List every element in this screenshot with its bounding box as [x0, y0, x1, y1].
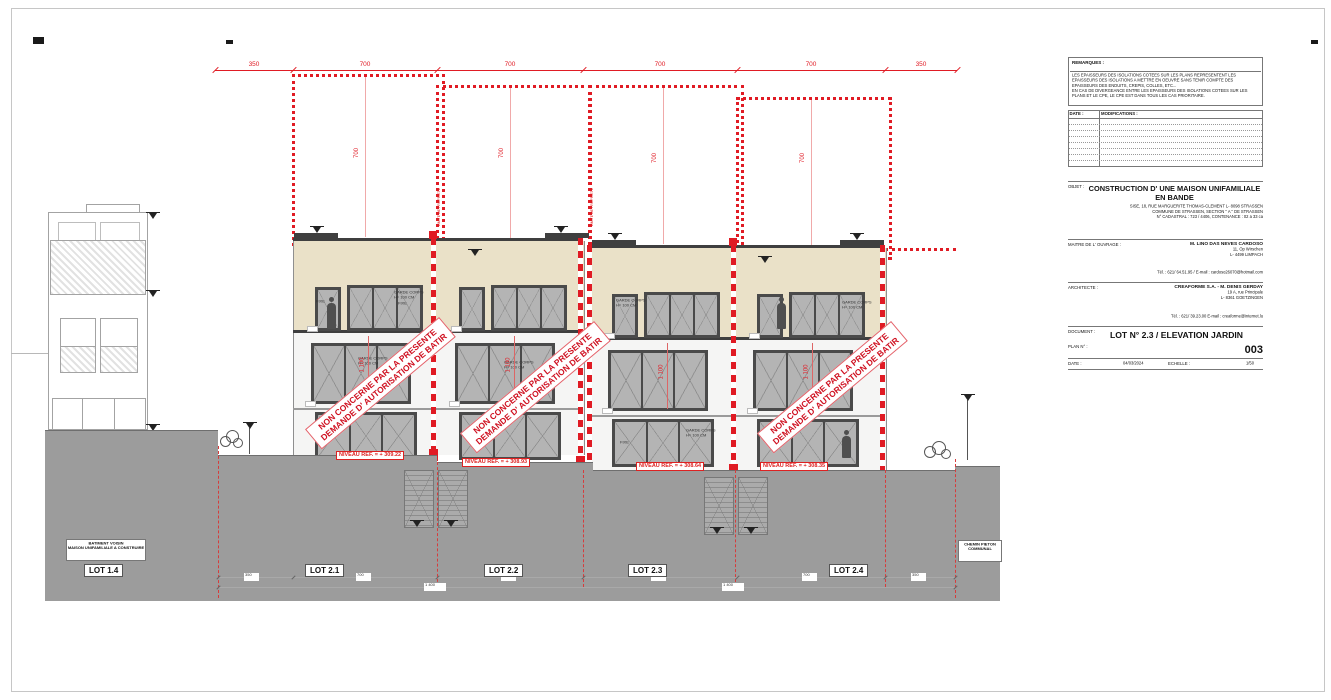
document-section: DOCUMENT : LOT N° 2.3 / ELEVATION JARDIN: [1068, 326, 1263, 342]
envelope-lot21: [292, 74, 445, 246]
axis-line: [365, 77, 366, 237]
level-marker: [610, 233, 620, 240]
level-marker: [746, 527, 756, 534]
axis-line: [811, 100, 812, 251]
dim-label: 700: [352, 61, 378, 68]
maitre-address: 11, Op Wirschen L- 4499 LIMPACH: [1068, 247, 1263, 258]
architecte-contact: Tél. : 621/ 39.23.00 E-mail : creaforme@…: [1068, 314, 1263, 319]
party-wall-marker: [731, 245, 736, 470]
remarks-text: LES EPAISSEURS DES ISOLATIONS COTEES SUR…: [1072, 73, 1259, 99]
level-marker: [760, 256, 770, 263]
remarks-box: REMARQUES : LES EPAISSEURS DES ISOLATION…: [1068, 57, 1263, 106]
level-marker: [148, 290, 158, 297]
plan-number: 003: [1068, 344, 1263, 356]
level-marker: [556, 226, 566, 233]
fold-mark: [33, 37, 44, 44]
micro-level-tag: [602, 408, 613, 414]
objet-section: OBJET : CONSTRUCTION D' UNE MAISON UNIFA…: [1068, 181, 1263, 239]
storey-dim: 1 100: [659, 364, 665, 379]
terrain: [593, 470, 955, 601]
height-dim: 700: [354, 148, 360, 158]
bush: [941, 449, 951, 459]
architecte-section: ARCHITECTE : CREAFORME S.A. - M. DENIS G…: [1068, 282, 1263, 325]
niveau-tag: NIVEAU REF. = + 308.93: [462, 458, 530, 467]
axis-line: [663, 88, 664, 244]
maitre-section: MAITRE DE L' OUVRAGE : M. LINO DAS NEVES…: [1068, 239, 1263, 282]
fold-mark: [1311, 40, 1318, 44]
level-marker: [245, 422, 255, 429]
lot-label-21: LOT 2.1: [305, 564, 344, 577]
objet-title: CONSTRUCTION D' UNE MAISON UNIFAMILIALE …: [1086, 184, 1263, 202]
lot-boundary: [437, 462, 438, 587]
garde-corps-label: GARDE CORPS H= 100 CM: [394, 290, 453, 300]
document-title: LOT N° 2.3 / ELEVATION JARDIN: [1090, 330, 1263, 340]
micro-level-tag: [305, 401, 316, 407]
micro-level-tag: [747, 408, 758, 414]
envelope-extension: [885, 248, 956, 251]
facade-window: [491, 285, 567, 331]
modifications-table: DATE : MODIFICATIONS :: [1068, 110, 1263, 167]
echelle-value: 1/50: [1246, 361, 1262, 366]
bottom-dim: 700: [357, 573, 370, 577]
fixe-label: FIXE: [316, 299, 334, 304]
objet-address: SISE, 18, RUE MARGUERITE THOMAS-CLEMENT …: [1068, 204, 1263, 220]
table-date-header: DATE :: [1069, 111, 1100, 116]
fold-mark: [226, 40, 233, 44]
fixe-label: FIXE: [620, 440, 638, 445]
terrain-path: [955, 466, 1000, 601]
bush: [233, 438, 243, 448]
lot-boundary: [583, 470, 584, 587]
axis-line: [510, 88, 511, 238]
height-dim: 700: [652, 153, 658, 163]
architecte-address: 19 A, rue Principale L- 8361 GOETZINGEN: [1068, 290, 1263, 301]
lot-label-22: LOT 2.2: [484, 564, 523, 577]
level-marker: [963, 394, 973, 401]
document-label: DOCUMENT :: [1068, 329, 1095, 334]
level-marker: [852, 233, 862, 240]
facade-window: [459, 287, 485, 331]
objet-label: OBJET :: [1068, 184, 1084, 189]
level-marker: [412, 520, 422, 527]
bottom-dim-line: [218, 577, 955, 578]
bottom-dim: 700: [803, 573, 816, 577]
level-marker: [312, 226, 322, 233]
storey-dim-line: [667, 343, 668, 409]
bottom-dim: 350: [912, 573, 925, 577]
plan-label: PLAN N° :: [1068, 344, 1088, 349]
garde-corps-label: GARDE CORPS H= 100 CM: [616, 298, 675, 308]
survey-pole: [249, 428, 250, 454]
table-modifications-header: MODIFICATIONS :: [1100, 111, 1262, 116]
boundary-note: LIMITE DE PROPRIETE: [437, 188, 441, 226]
level-marker: [470, 249, 480, 256]
level-marker: [712, 527, 722, 534]
micro-level-tag: [749, 333, 760, 339]
micro-level-tag: [449, 401, 460, 407]
drawing-sheet: { "colors": {"red":"#e01b24","stamp_red"…: [0, 0, 1331, 700]
micro-level-tag: [451, 326, 462, 332]
bottom-dim: 1 400: [723, 583, 743, 587]
dim-label: 350: [241, 61, 267, 68]
date-value: 04/03/2024: [1123, 361, 1164, 366]
micro-level-tag: [307, 326, 318, 332]
niveau-tag: NIVEAU REF. = + 309.22: [336, 451, 404, 460]
wall-cap: [429, 231, 437, 239]
date-label: DATE :: [1068, 361, 1082, 366]
dim-label: 700: [647, 61, 673, 68]
boundary-note: LIMITE DE PROPRIETE: [590, 188, 594, 226]
remarks-title: REMARQUES :: [1072, 60, 1259, 65]
lot-label-23: LOT 2.3: [628, 564, 667, 577]
fixe-label: FIXE: [398, 301, 416, 306]
level-marker: [446, 520, 456, 527]
terrain: [45, 430, 218, 601]
garde-corps-label: GARDE CORPS H= 100 CM: [842, 300, 901, 310]
lot-boundary: [885, 470, 886, 587]
dim-label: 700: [497, 61, 523, 68]
niveau-tag: NIVEAU REF. = + 308.64: [636, 462, 704, 471]
plan-section: PLAN N° : 003: [1068, 342, 1263, 358]
dim-label: 700: [798, 61, 824, 68]
niveau-tag: NIVEAU REF. = + 308.35: [760, 462, 828, 471]
person-figure: [842, 436, 851, 458]
title-block: REMARQUES : LES EPAISSEURS DES ISOLATION…: [1068, 57, 1263, 370]
envelope-lot23: [589, 85, 744, 252]
storey-dim: 1 100: [506, 357, 512, 372]
dim-label: 350: [908, 61, 934, 68]
top-dimension-line: [215, 70, 957, 71]
chemin-label: CHEMIN PIETON COMMUNAL: [959, 542, 1001, 551]
maitre-contact: Tél. : 621/ 64.51.95 / E-mail : cardoso2…: [1068, 270, 1263, 275]
height-dim: 700: [499, 148, 505, 158]
storey-dim: 1 100: [360, 357, 366, 372]
envelope-lot24: [736, 97, 892, 260]
level-marker: [148, 212, 158, 219]
echelle-label: ECHELLE :: [1168, 361, 1212, 366]
storey-dim: 1 100: [804, 364, 810, 379]
bottom-dim: 350: [245, 573, 258, 577]
date-section: DATE : 04/03/2024 ECHELLE : 1/50: [1068, 358, 1263, 369]
height-dim: 700: [800, 153, 806, 163]
person-figure: [777, 303, 786, 329]
lot-label-24: LOT 2.4: [829, 564, 868, 577]
survey-pole: [967, 400, 968, 460]
lot-boundary: [735, 470, 736, 587]
bottom-dim-line: [218, 587, 955, 588]
wall-cap: [729, 238, 737, 246]
facade-window: [608, 350, 708, 411]
neighbor-label: BATIMENT VOISIN MAISON UNIFAMILIALE A CO…: [67, 541, 145, 550]
balcony-railing: [50, 240, 146, 295]
garde-corps-label: GARDE CORPS H= 100 CM: [686, 428, 745, 438]
lot-label-14: LOT 1.4: [84, 564, 123, 577]
bottom-dim: 1 400: [425, 583, 445, 587]
